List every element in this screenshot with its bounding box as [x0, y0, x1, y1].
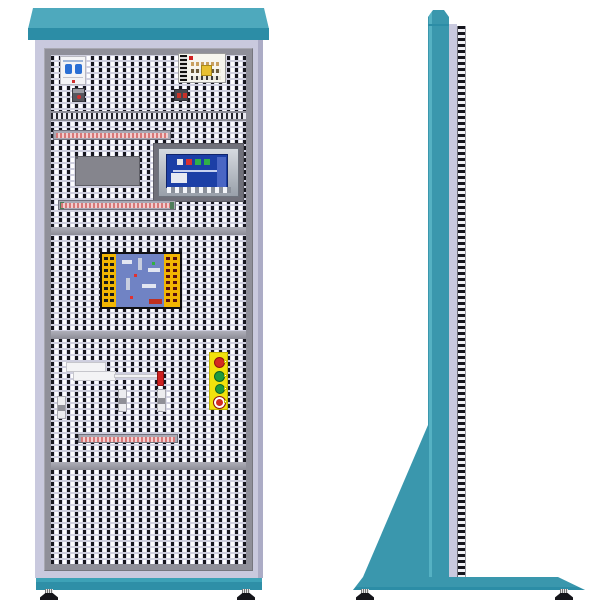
body-right-shade [258, 40, 263, 578]
miniature-relay [118, 389, 127, 412]
front-top-cap [28, 8, 269, 40]
hmi-bezel [158, 148, 239, 197]
foot-pad [40, 593, 58, 600]
miniature-relay [157, 389, 166, 412]
relay-band [58, 405, 65, 411]
side-component-strip [457, 26, 466, 577]
plc-module [75, 156, 140, 186]
pcb-component [138, 258, 142, 270]
hmi-screen [166, 154, 228, 188]
fuse-red-mark [183, 93, 187, 98]
button-tag [224, 387, 227, 390]
pcb-component [142, 284, 156, 288]
fuse-terminal [174, 89, 188, 101]
breaker-label-line [63, 77, 83, 78]
screen-side-column [217, 157, 226, 187]
side-panel-edge-strip [449, 24, 457, 577]
button-tag [224, 400, 227, 403]
psu-terminal-column [180, 55, 187, 81]
front-base-plinth [36, 578, 262, 590]
screen-indicator [186, 159, 192, 165]
terminal-strip [58, 200, 176, 210]
panel-divider [51, 227, 246, 235]
foot-pad [356, 593, 374, 600]
button-tag [224, 360, 227, 363]
plc-block [76, 157, 78, 159]
leveling-foot [237, 589, 255, 600]
cap-front-band [28, 28, 269, 40]
terminal-pin-column [104, 257, 108, 304]
green-pushbutton [215, 384, 225, 394]
terminal-pin-column [110, 257, 114, 304]
button-tag [224, 374, 227, 377]
hmi-function-keys [167, 187, 231, 193]
pilot-indicator [157, 371, 164, 386]
pcb-component [126, 278, 130, 290]
fuse-red-mark [177, 93, 181, 98]
breaker-toggle-icon [65, 64, 72, 74]
terminal-strip-contacts [61, 203, 173, 208]
pcb-label [149, 299, 162, 304]
foot-pad [555, 593, 573, 600]
pcb-led-icon [130, 296, 133, 299]
panel-divider [51, 462, 246, 470]
pcb-led-icon [152, 262, 155, 265]
psu-transformer [201, 65, 212, 76]
miniature-circuit-breaker [60, 56, 86, 85]
panel-divider [51, 331, 246, 339]
leveling-foot [555, 589, 573, 600]
base-bottom-edge [353, 587, 585, 590]
side-support-gusset [363, 425, 428, 577]
leveling-foot [40, 589, 58, 600]
terminal-pin-column [166, 257, 170, 304]
wiring-rail [114, 374, 158, 378]
pcb-component [122, 260, 132, 264]
pushbutton-station [209, 352, 228, 410]
terminal-strip [78, 434, 178, 443]
relay-band [158, 398, 165, 404]
relay-band [119, 398, 126, 404]
psu-components-row [191, 76, 221, 80]
side-upright-column [428, 10, 449, 577]
terminal-strip [53, 130, 171, 140]
hmi-touch-panel [153, 143, 244, 202]
io-right-terminal-column [164, 254, 180, 307]
base-highlight [36, 578, 262, 582]
side-floor-base [353, 577, 585, 590]
cabinet-illustration [0, 0, 600, 600]
cable-duct [73, 371, 116, 381]
leveling-foot [356, 589, 374, 600]
psu-led-icon [189, 56, 193, 60]
cap-top-face [28, 8, 269, 29]
terminal-strip-end [170, 202, 174, 209]
miniature-relay [57, 396, 66, 419]
breaker-top-line [63, 60, 83, 62]
terminal-pin-column [173, 257, 177, 304]
screen-subpanel [171, 173, 187, 183]
column-highlight [429, 10, 432, 577]
screen-process-line [173, 170, 217, 172]
relay-cap [73, 89, 84, 93]
terminal-strip-contacts [56, 133, 168, 138]
screen-indicator [177, 159, 183, 165]
relay-block [72, 88, 85, 102]
pcb-component [148, 268, 160, 272]
io-interface-board [100, 252, 182, 309]
screen-indicator [204, 159, 210, 165]
screen-indicator [195, 159, 201, 165]
breaker-indicator-dot [72, 80, 75, 83]
foot-pad [237, 593, 255, 600]
breaker-toggle-icon [75, 64, 82, 74]
io-left-terminal-column [102, 254, 116, 307]
cap-seam [428, 24, 449, 26]
terminal-strip-contacts [81, 437, 175, 442]
switching-power-supply [178, 53, 226, 83]
terminal-block-row [51, 111, 246, 121]
pcb-led-icon [134, 274, 137, 277]
relay-indicator-dot [77, 95, 81, 99]
